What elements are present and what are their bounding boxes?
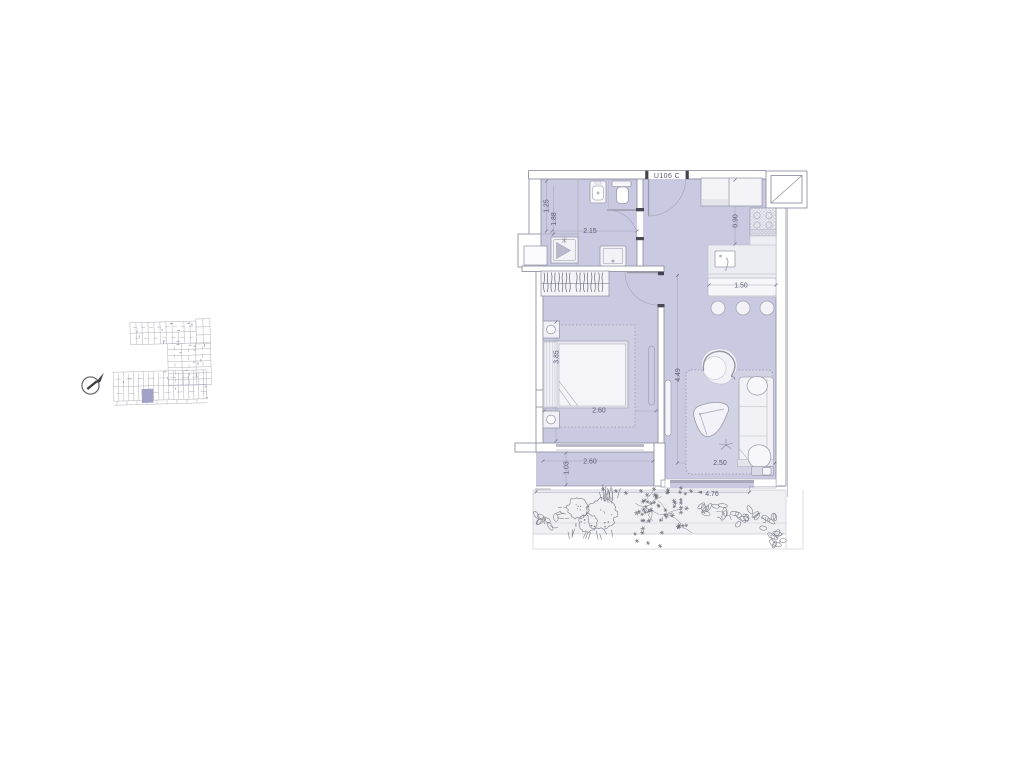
svg-text:4.49: 4.49 — [675, 368, 682, 382]
svg-text:3.85: 3.85 — [554, 350, 561, 364]
svg-text:2.50: 2.50 — [713, 460, 727, 467]
svg-text:4.76: 4.76 — [705, 491, 719, 498]
svg-text:1.88: 1.88 — [551, 212, 558, 226]
svg-text:1.03: 1.03 — [564, 461, 571, 475]
svg-text:0.90: 0.90 — [733, 214, 740, 228]
svg-text:2.60: 2.60 — [592, 407, 606, 414]
svg-text:2.15: 2.15 — [583, 228, 597, 235]
svg-text:1.25: 1.25 — [544, 199, 551, 213]
svg-text:2.60: 2.60 — [583, 458, 597, 465]
svg-text:1.50: 1.50 — [734, 283, 748, 290]
svg-text:U106 C: U106 C — [654, 173, 680, 180]
